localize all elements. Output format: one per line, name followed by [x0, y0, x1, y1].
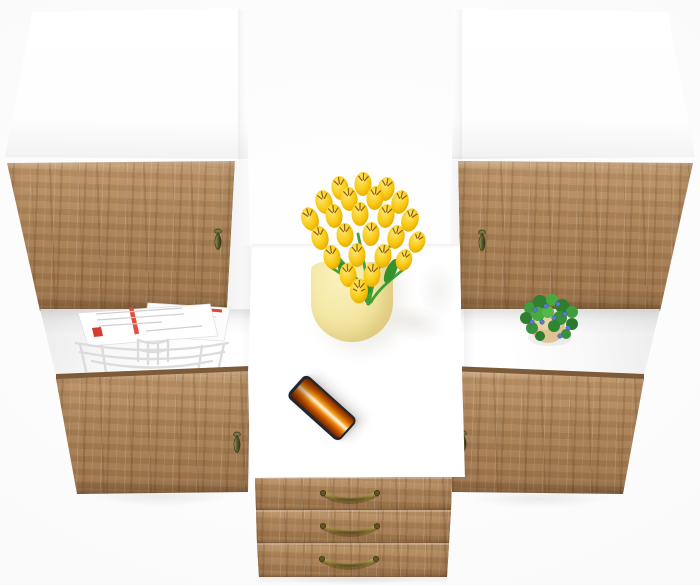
right-cabinet-floor-shadow [446, 490, 636, 514]
drawer-3-pull [317, 554, 381, 572]
left-cabinet-upper-door [7, 161, 235, 311]
potted-plant [502, 294, 598, 354]
left-cabinet-lower-door [56, 371, 250, 494]
drawer-1-pull [318, 488, 382, 506]
left-cabinet-top-panel [5, 8, 248, 161]
left-cabinet-top-edge-shade [238, 9, 248, 160]
right-cabinet-top-panel [452, 8, 696, 160]
right-cabinet-upper-door [458, 161, 693, 311]
left-upper-door-knob [212, 228, 224, 254]
right-cabinet-top-edge-shade [452, 9, 462, 160]
drawer-floor-shadow [262, 576, 446, 585]
newspapers [78, 303, 230, 346]
tulip-bouquet [293, 172, 443, 314]
right-cabinet-lower-door [450, 371, 644, 494]
drawer-2-pull [318, 521, 382, 539]
furniture-render [0, 0, 700, 585]
tulip-buds [298, 172, 428, 304]
left-cabinet-floor-shadow [62, 488, 258, 512]
